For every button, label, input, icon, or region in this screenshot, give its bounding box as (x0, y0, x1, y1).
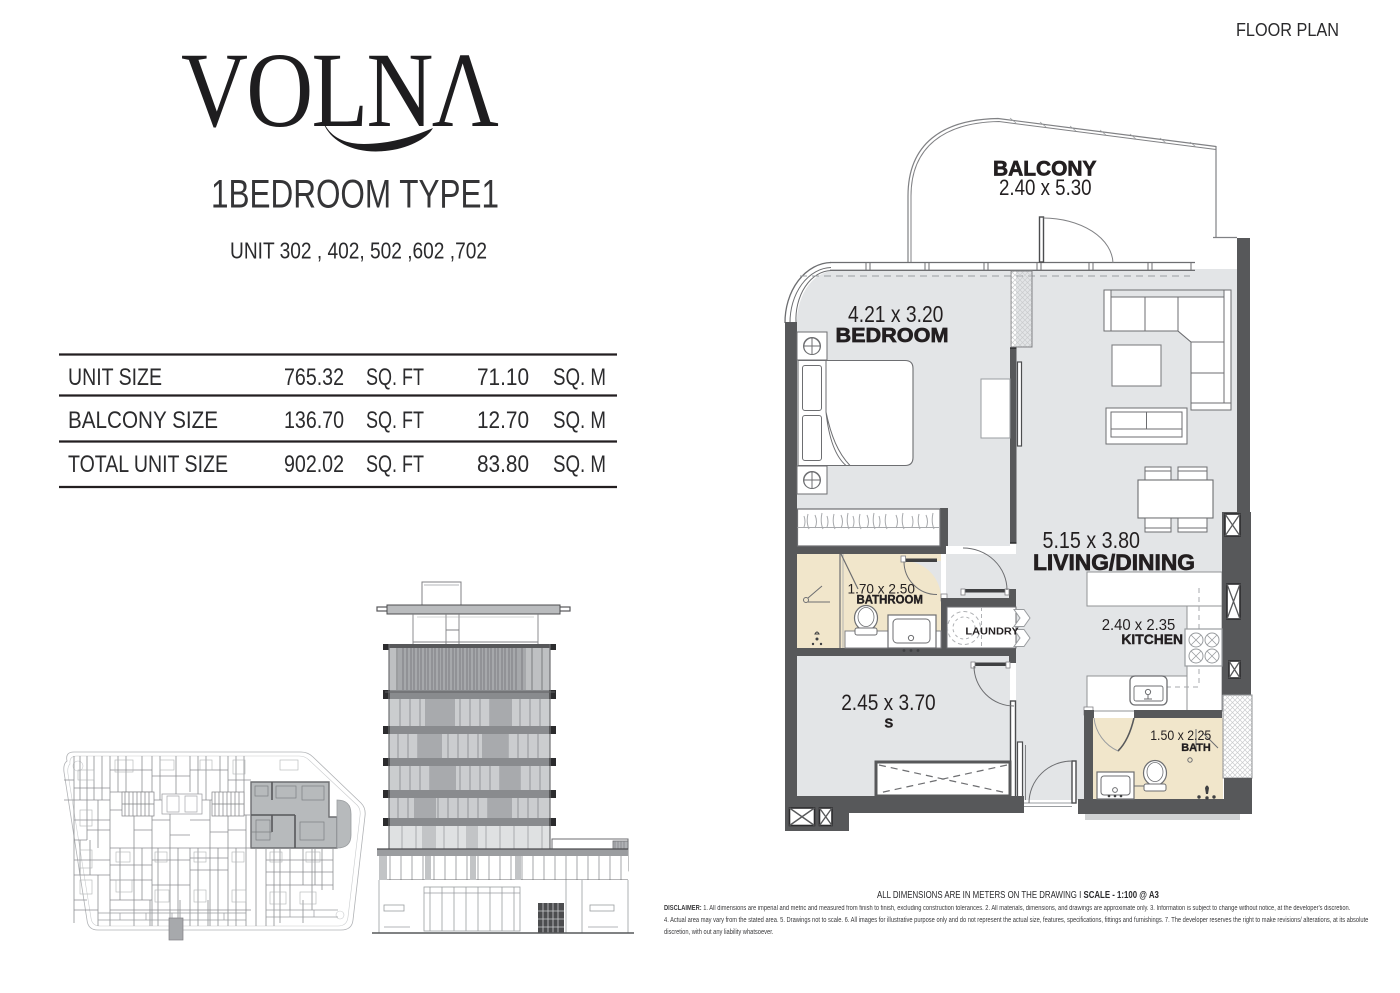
svg-text:902.02: 902.02 (284, 451, 344, 478)
svg-text:765.32: 765.32 (284, 364, 344, 391)
svg-text:BEDROOM: BEDROOM (836, 324, 949, 347)
svg-text:SQ. FT: SQ. FT (366, 407, 424, 434)
svg-text:SQ. M: SQ. M (553, 364, 606, 391)
svg-text:S: S (885, 716, 894, 731)
svg-text:1BEDROOM TYPE1: 1BEDROOM TYPE1 (211, 173, 499, 217)
svg-text:LIVING/DINING: LIVING/DINING (1033, 550, 1195, 575)
svg-text:KITCHEN: KITCHEN (1121, 632, 1183, 647)
svg-text:71.10: 71.10 (477, 364, 529, 391)
svg-text:BALCONY SIZE: BALCONY SIZE (68, 407, 218, 434)
svg-text:SQ. FT: SQ. FT (366, 364, 424, 391)
svg-text:TOTAL UNIT SIZE: TOTAL UNIT SIZE (68, 451, 228, 478)
svg-text:UNIT 302 , 402, 502 ,602 ,702: UNIT 302 , 402, 502 ,602 ,702 (230, 238, 487, 264)
svg-text:VOLNΛ: VOLNΛ (181, 30, 499, 149)
svg-text:83.80: 83.80 (477, 451, 529, 478)
svg-text:BATHROOM: BATHROOM (857, 593, 923, 607)
svg-text:SQ. M: SQ. M (553, 407, 606, 434)
svg-text:LAUNDRY: LAUNDRY (965, 626, 1019, 637)
svg-text:2.45 x 3.70: 2.45 x 3.70 (841, 690, 936, 715)
svg-text:12.70: 12.70 (477, 407, 529, 434)
svg-text:2.40 x 5.30: 2.40 x 5.30 (999, 175, 1092, 200)
svg-text:UNIT SIZE: UNIT SIZE (68, 364, 162, 391)
svg-text:1.50 x 2.25: 1.50 x 2.25 (1150, 727, 1211, 743)
svg-text:SQ. M: SQ. M (553, 451, 606, 478)
svg-text:SQ. FT: SQ. FT (366, 451, 424, 478)
svg-text:136.70: 136.70 (284, 407, 344, 434)
svg-text:BATH: BATH (1181, 742, 1211, 754)
svg-text:FLOOR PLAN: FLOOR PLAN (1236, 19, 1339, 40)
